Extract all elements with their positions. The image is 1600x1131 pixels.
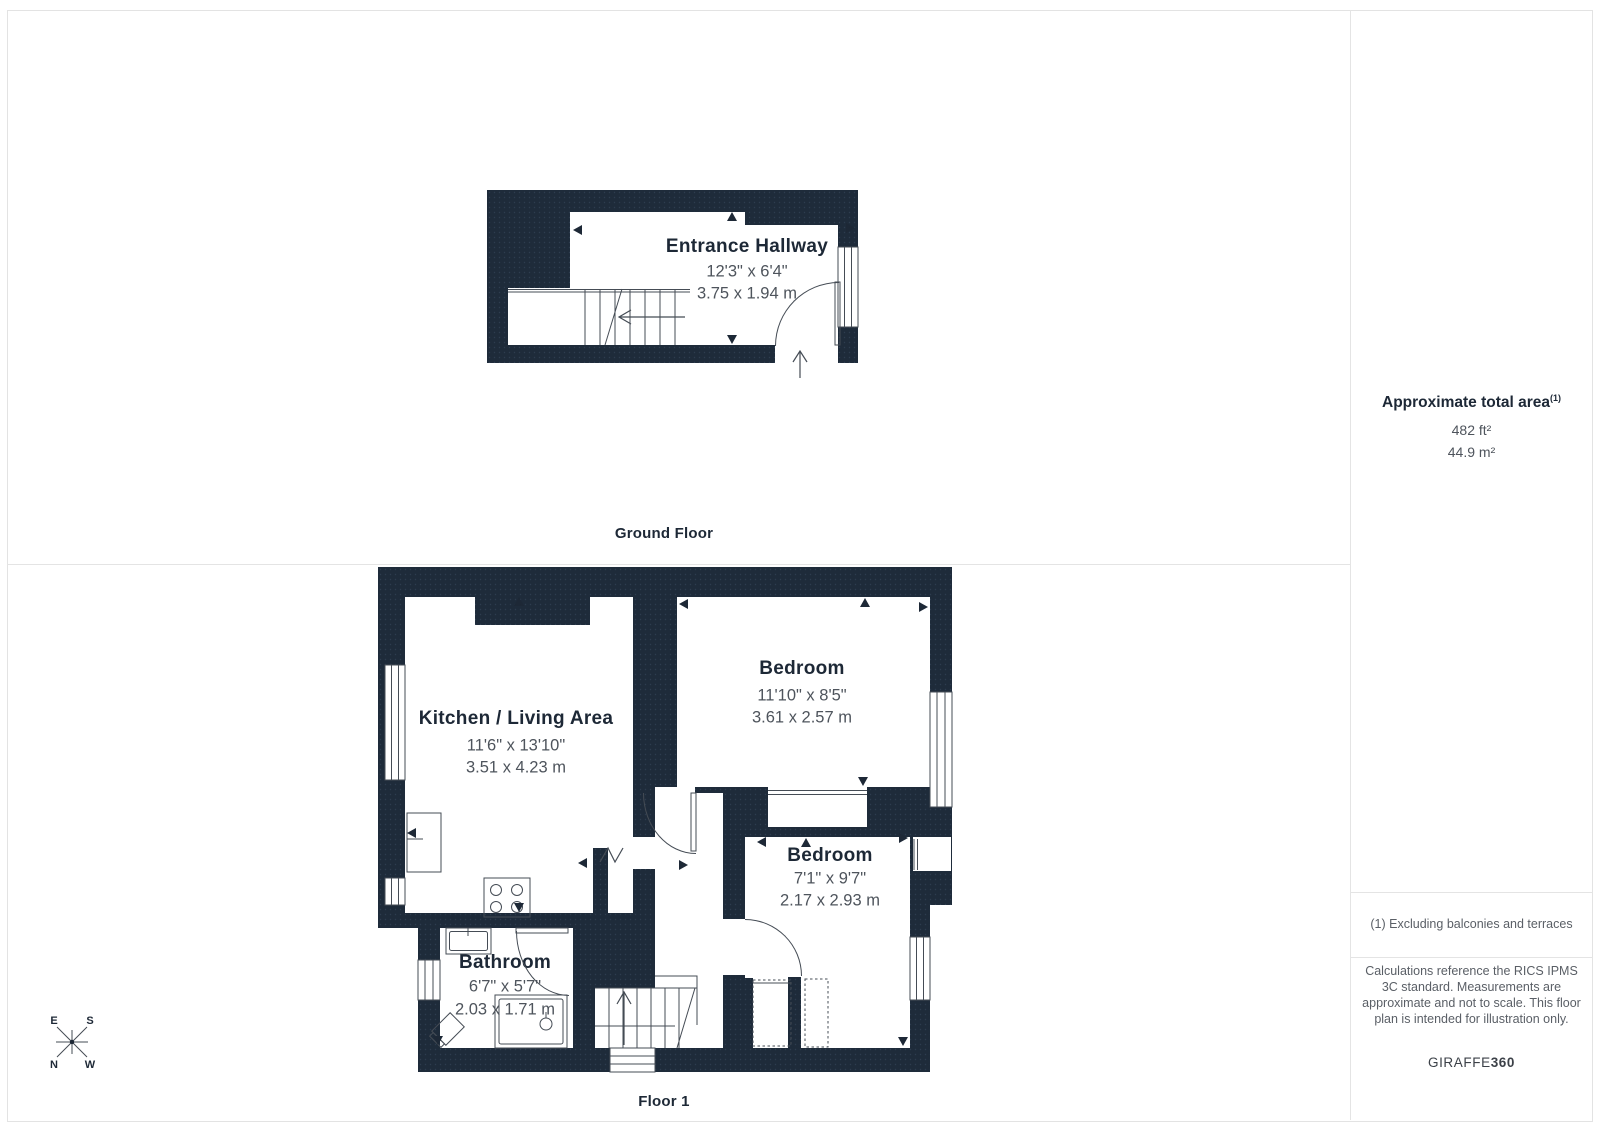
floor-1-plan: Kitchen / Living Area 11'6" x 13'10" 3.5…: [378, 567, 952, 1072]
compass-west: W: [85, 1059, 96, 1071]
room-dim-ft: 12'3" x 6'4": [706, 262, 787, 280]
room-dim-m: 3.61 x 2.57 m: [752, 708, 852, 726]
total-area-superscript: (1): [1550, 393, 1561, 403]
floor-1-caption: Floor 1: [514, 1093, 814, 1110]
panel-divider-2: [1350, 957, 1593, 958]
panel-divider-vertical: [1350, 10, 1351, 1120]
compass-east: E: [50, 1015, 57, 1027]
window: [838, 247, 858, 327]
room-dim-m: 3.75 x 1.94 m: [697, 284, 797, 302]
compass-north: N: [50, 1059, 58, 1071]
total-area-block: Approximate total area(1) 482 ft² 44.9 m…: [1350, 393, 1593, 463]
total-area-values: 482 ft² 44.9 m²: [1350, 419, 1593, 463]
panel-divider-1: [1350, 892, 1593, 893]
room-label-bedroom-1: Bedroom: [759, 658, 845, 679]
ground-floor-plan: Entrance Hallway 12'3" x 6'4" 3.75 x 1.9…: [487, 190, 858, 363]
brand-logo: GIRAFFE360: [1350, 1055, 1593, 1070]
area-ft: 482 ft²: [1350, 419, 1593, 441]
ground-floor-drawing: Entrance Hallway 12'3" x 6'4" 3.75 x 1.9…: [487, 190, 858, 390]
room-label-entrance-hallway: Entrance Hallway: [666, 236, 828, 257]
room-dim-ft: 7'1" x 9'7": [794, 869, 866, 887]
room-label-bedroom-2: Bedroom: [787, 845, 873, 866]
room-dim-m: 3.51 x 4.23 m: [466, 758, 566, 776]
brand-suffix: 360: [1491, 1055, 1515, 1070]
room-label-kitchen-living: Kitchen / Living Area: [419, 708, 614, 729]
total-area-title: Approximate total area(1): [1350, 393, 1593, 412]
compass-south: S: [86, 1015, 93, 1027]
room-dim-ft: 11'6" x 13'10": [467, 736, 566, 754]
room-dim-ft: 11'10" x 8'5": [757, 686, 846, 704]
brand-name: GIRAFFE: [1428, 1055, 1491, 1070]
footnote: (1) Excluding balconies and terraces: [1350, 917, 1593, 931]
room-dim-ft: 6'7" x 5'7": [469, 977, 541, 995]
room-dim-m: 2.17 x 2.93 m: [780, 891, 880, 909]
area-m: 44.9 m²: [1350, 441, 1593, 463]
compass-rose-icon: E S N W: [40, 1008, 104, 1072]
room-dim-m: 2.03 x 1.71 m: [455, 1000, 555, 1018]
floors-divider-horizontal: [7, 564, 1350, 565]
disclaimer: Calculations reference the RICS IPMS 3C …: [1362, 963, 1581, 1027]
total-area-label: Approximate total area: [1382, 394, 1550, 411]
floorplan-page: { "floors": [ { "label": "Ground Floor",…: [0, 0, 1600, 1131]
ground-floor-caption: Ground Floor: [514, 525, 814, 542]
